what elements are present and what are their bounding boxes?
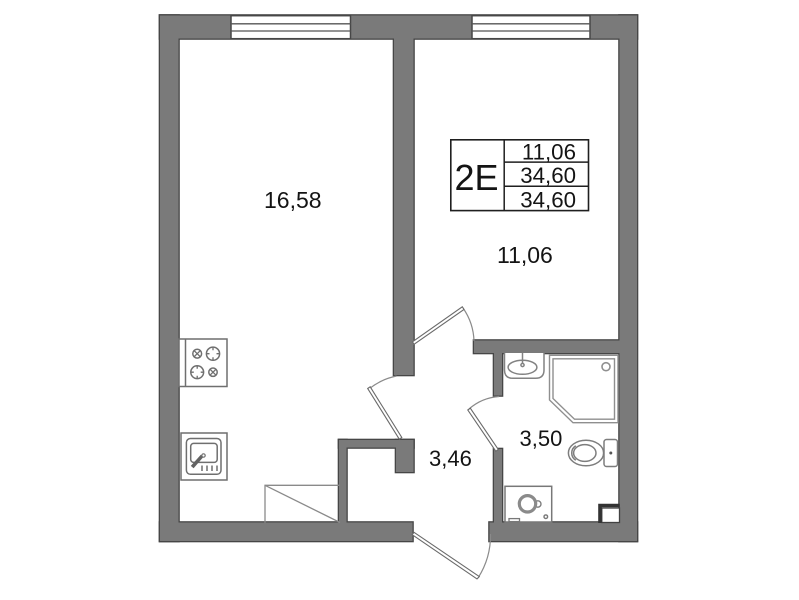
svg-text:3,46: 3,46 [429, 446, 472, 471]
svg-text:11,06: 11,06 [522, 139, 576, 164]
svg-text:2E: 2E [454, 157, 498, 198]
svg-text:16,58: 16,58 [264, 187, 322, 213]
svg-text:11,06: 11,06 [497, 242, 553, 268]
svg-text:34,60: 34,60 [520, 187, 576, 212]
svg-text:34,60: 34,60 [520, 163, 576, 188]
svg-text:3,50: 3,50 [520, 426, 563, 451]
